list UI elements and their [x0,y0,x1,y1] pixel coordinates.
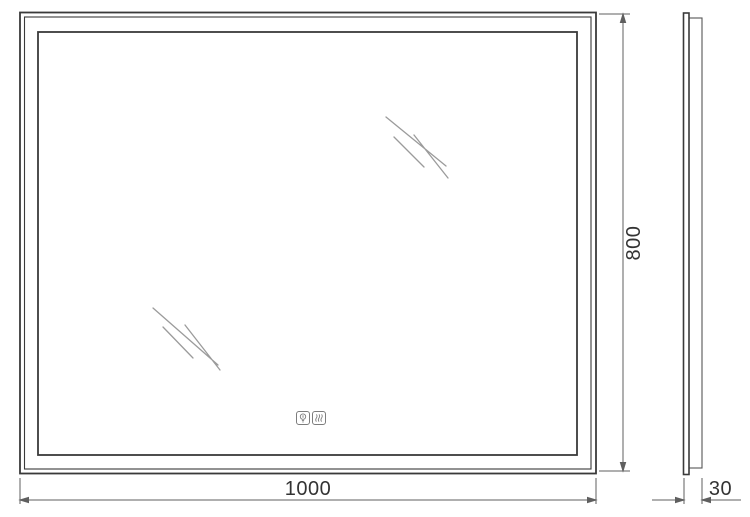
height-dimension-label: 800 [624,193,644,293]
shine-bottom-left [153,308,220,370]
profile-glass-panel [684,13,690,475]
mirror-outer-edge-inner-line [25,17,592,469]
width-dimension-label: 1000 [258,479,358,499]
arrowhead-down-icon [620,463,625,472]
mirror-outer-edge [20,13,596,474]
light-bulb-icon [296,411,310,425]
shine-top-right [386,117,448,178]
depth-dimension-label: 30 [702,479,739,499]
arrowhead-up-icon [620,14,625,23]
heat-waves-icon [312,411,326,425]
arrowhead-right-icon [676,497,685,502]
front-view [20,13,596,474]
side-profile-view [684,13,703,475]
glass-shine-marks [153,117,448,370]
arrowhead-left-icon [20,497,29,502]
mirror-inner-frame [38,32,577,455]
technical-drawing-canvas: 1000 800 30 [0,0,750,517]
arrowhead-right-icon [588,497,597,502]
profile-back-panel [689,18,703,468]
